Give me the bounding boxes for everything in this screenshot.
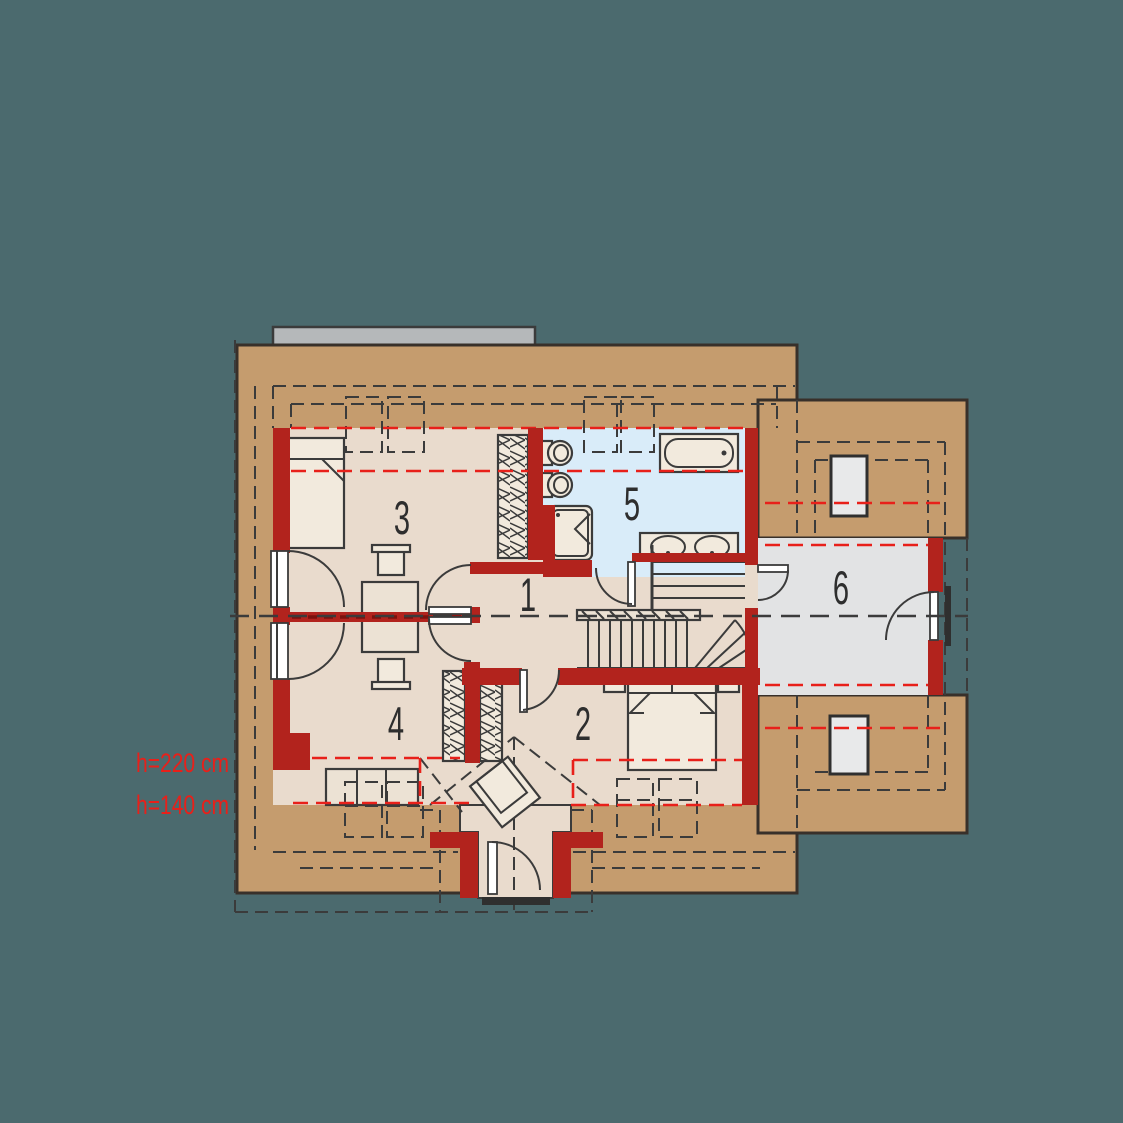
height-label-140: h=140 cm	[136, 791, 229, 821]
svg-text:3: 3	[394, 493, 410, 545]
bed-room3	[287, 438, 344, 548]
exterior-step	[945, 586, 951, 646]
floor-plan-canvas: 1 2 3 4 5 6 h=220 cm h=140 cm	[0, 0, 1123, 1123]
bidet	[541, 473, 572, 497]
skylight	[831, 456, 867, 516]
room-label-4: 4	[388, 699, 404, 751]
room-label-2: 2	[575, 699, 591, 751]
shower	[549, 506, 592, 560]
svg-text:5: 5	[624, 479, 640, 531]
svg-text:6: 6	[833, 563, 849, 615]
svg-text:2: 2	[575, 699, 591, 751]
room-label-5: 5	[624, 479, 640, 531]
floor-plan-drawing: 1 2 3 4 5 6 h=220 cm h=140 cm	[0, 0, 1123, 1123]
skylight	[830, 716, 868, 774]
svg-text:1: 1	[520, 570, 536, 622]
svg-text:4: 4	[388, 699, 404, 751]
bathtub	[660, 434, 738, 472]
room-label-6: 6	[833, 563, 849, 615]
threshold	[482, 897, 550, 905]
room-label-3: 3	[394, 493, 410, 545]
height-label-220: h=220 cm	[136, 749, 229, 779]
wardrobe-closet	[498, 435, 528, 558]
room-label-1: 1	[520, 570, 536, 622]
